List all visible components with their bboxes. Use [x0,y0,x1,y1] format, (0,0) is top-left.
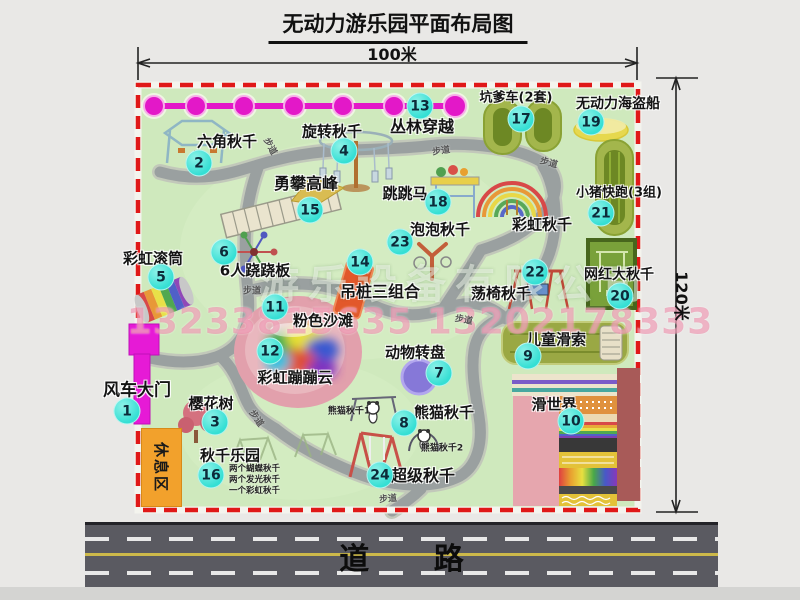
swing-paradise-note-line: 两个蝴蝶秋千 [229,464,280,475]
attraction-badge-6: 6 [211,239,238,266]
attraction-badge-17: 17 [508,106,535,133]
attraction-badge-18: 18 [425,189,452,216]
attraction-label-rainbow-swing: 彩虹秋千 [512,214,572,235]
swing-paradise-note-line: 两个发光秋千 [229,475,280,486]
rest-area: 休息区 [141,428,182,507]
attraction-badge-8: 8 [391,410,418,437]
attraction-badge-7: 7 [426,360,453,387]
slide-world-icon [512,368,640,506]
attraction-label-22: 荡椅秋千 [471,283,531,304]
attraction-label-18: 跳跳马 [382,183,427,204]
attraction-label-15: 勇攀高峰 [274,170,338,194]
width-dimension-label: 100米 [367,41,416,65]
playground-plan: 无动力游乐园平面布局图 [0,0,800,600]
attraction-label-17: 坑爹车(2套) [480,87,553,106]
road: 道 路 [85,522,718,590]
attraction-badge-19: 19 [578,109,605,136]
panda-swing-sublabel: 熊猫秋千1 [328,404,370,417]
road-shoulder [0,587,800,600]
attraction-label-12: 彩虹蹦蹦云 [257,367,332,388]
road-label: 道 路 [85,525,718,587]
attraction-badge-5: 5 [148,264,175,291]
rest-area-label: 休息区 [151,442,172,493]
attraction-label-21: 小猪快跑(3组) [576,182,662,201]
attraction-badge-13: 13 [407,93,434,120]
page-title: 无动力游乐园平面布局图 [269,8,528,44]
attraction-label-4: 旋转秋千 [302,121,362,142]
attraction-label-8: 熊猫秋千 [414,402,474,423]
attraction-label-24: 超级秋千 [391,462,455,486]
attraction-badge-1: 1 [114,398,141,425]
attraction-badge-2: 2 [186,150,213,177]
attraction-badge-12: 12 [257,338,284,365]
attraction-badge-14: 14 [347,249,374,276]
walkway-label: 步道 [378,491,397,506]
attraction-label-11: 粉色沙滩 [293,310,353,331]
attraction-badge-3: 3 [202,409,229,436]
attraction-badge-9: 9 [515,343,542,370]
attraction-badge-23: 23 [387,229,414,256]
attraction-badge-15: 15 [297,197,324,224]
attraction-badge-24: 24 [367,462,394,489]
attraction-label-20: 网红大秋千 [584,264,654,284]
attraction-label-23: 泡泡秋千 [410,219,470,240]
attraction-label-14: 吊桩三组合 [340,278,420,302]
attraction-badge-21: 21 [588,200,615,227]
attraction-badge-22: 22 [522,259,549,286]
attraction-badge-20: 20 [607,283,634,310]
walkway-label: 步道 [243,284,261,297]
attraction-label-2: 六角秋千 [197,131,257,152]
attraction-badge-4: 4 [331,138,358,165]
swing-paradise-notes: 两个蝴蝶秋千两个发光秋千一个彩虹秋千 [229,464,280,497]
swing-paradise-note-line: 一个彩虹秋千 [229,486,280,497]
height-dimension-label: 120米 [671,271,695,320]
attraction-badge-11: 11 [262,294,289,321]
panda-swing-sublabel: 熊猫秋千2 [421,441,463,454]
walkway-label: 步道 [431,142,451,157]
attraction-badge-10: 10 [558,408,585,435]
attraction-badge-16: 16 [198,462,225,489]
attraction-label-1: 风车大门 [103,376,171,401]
